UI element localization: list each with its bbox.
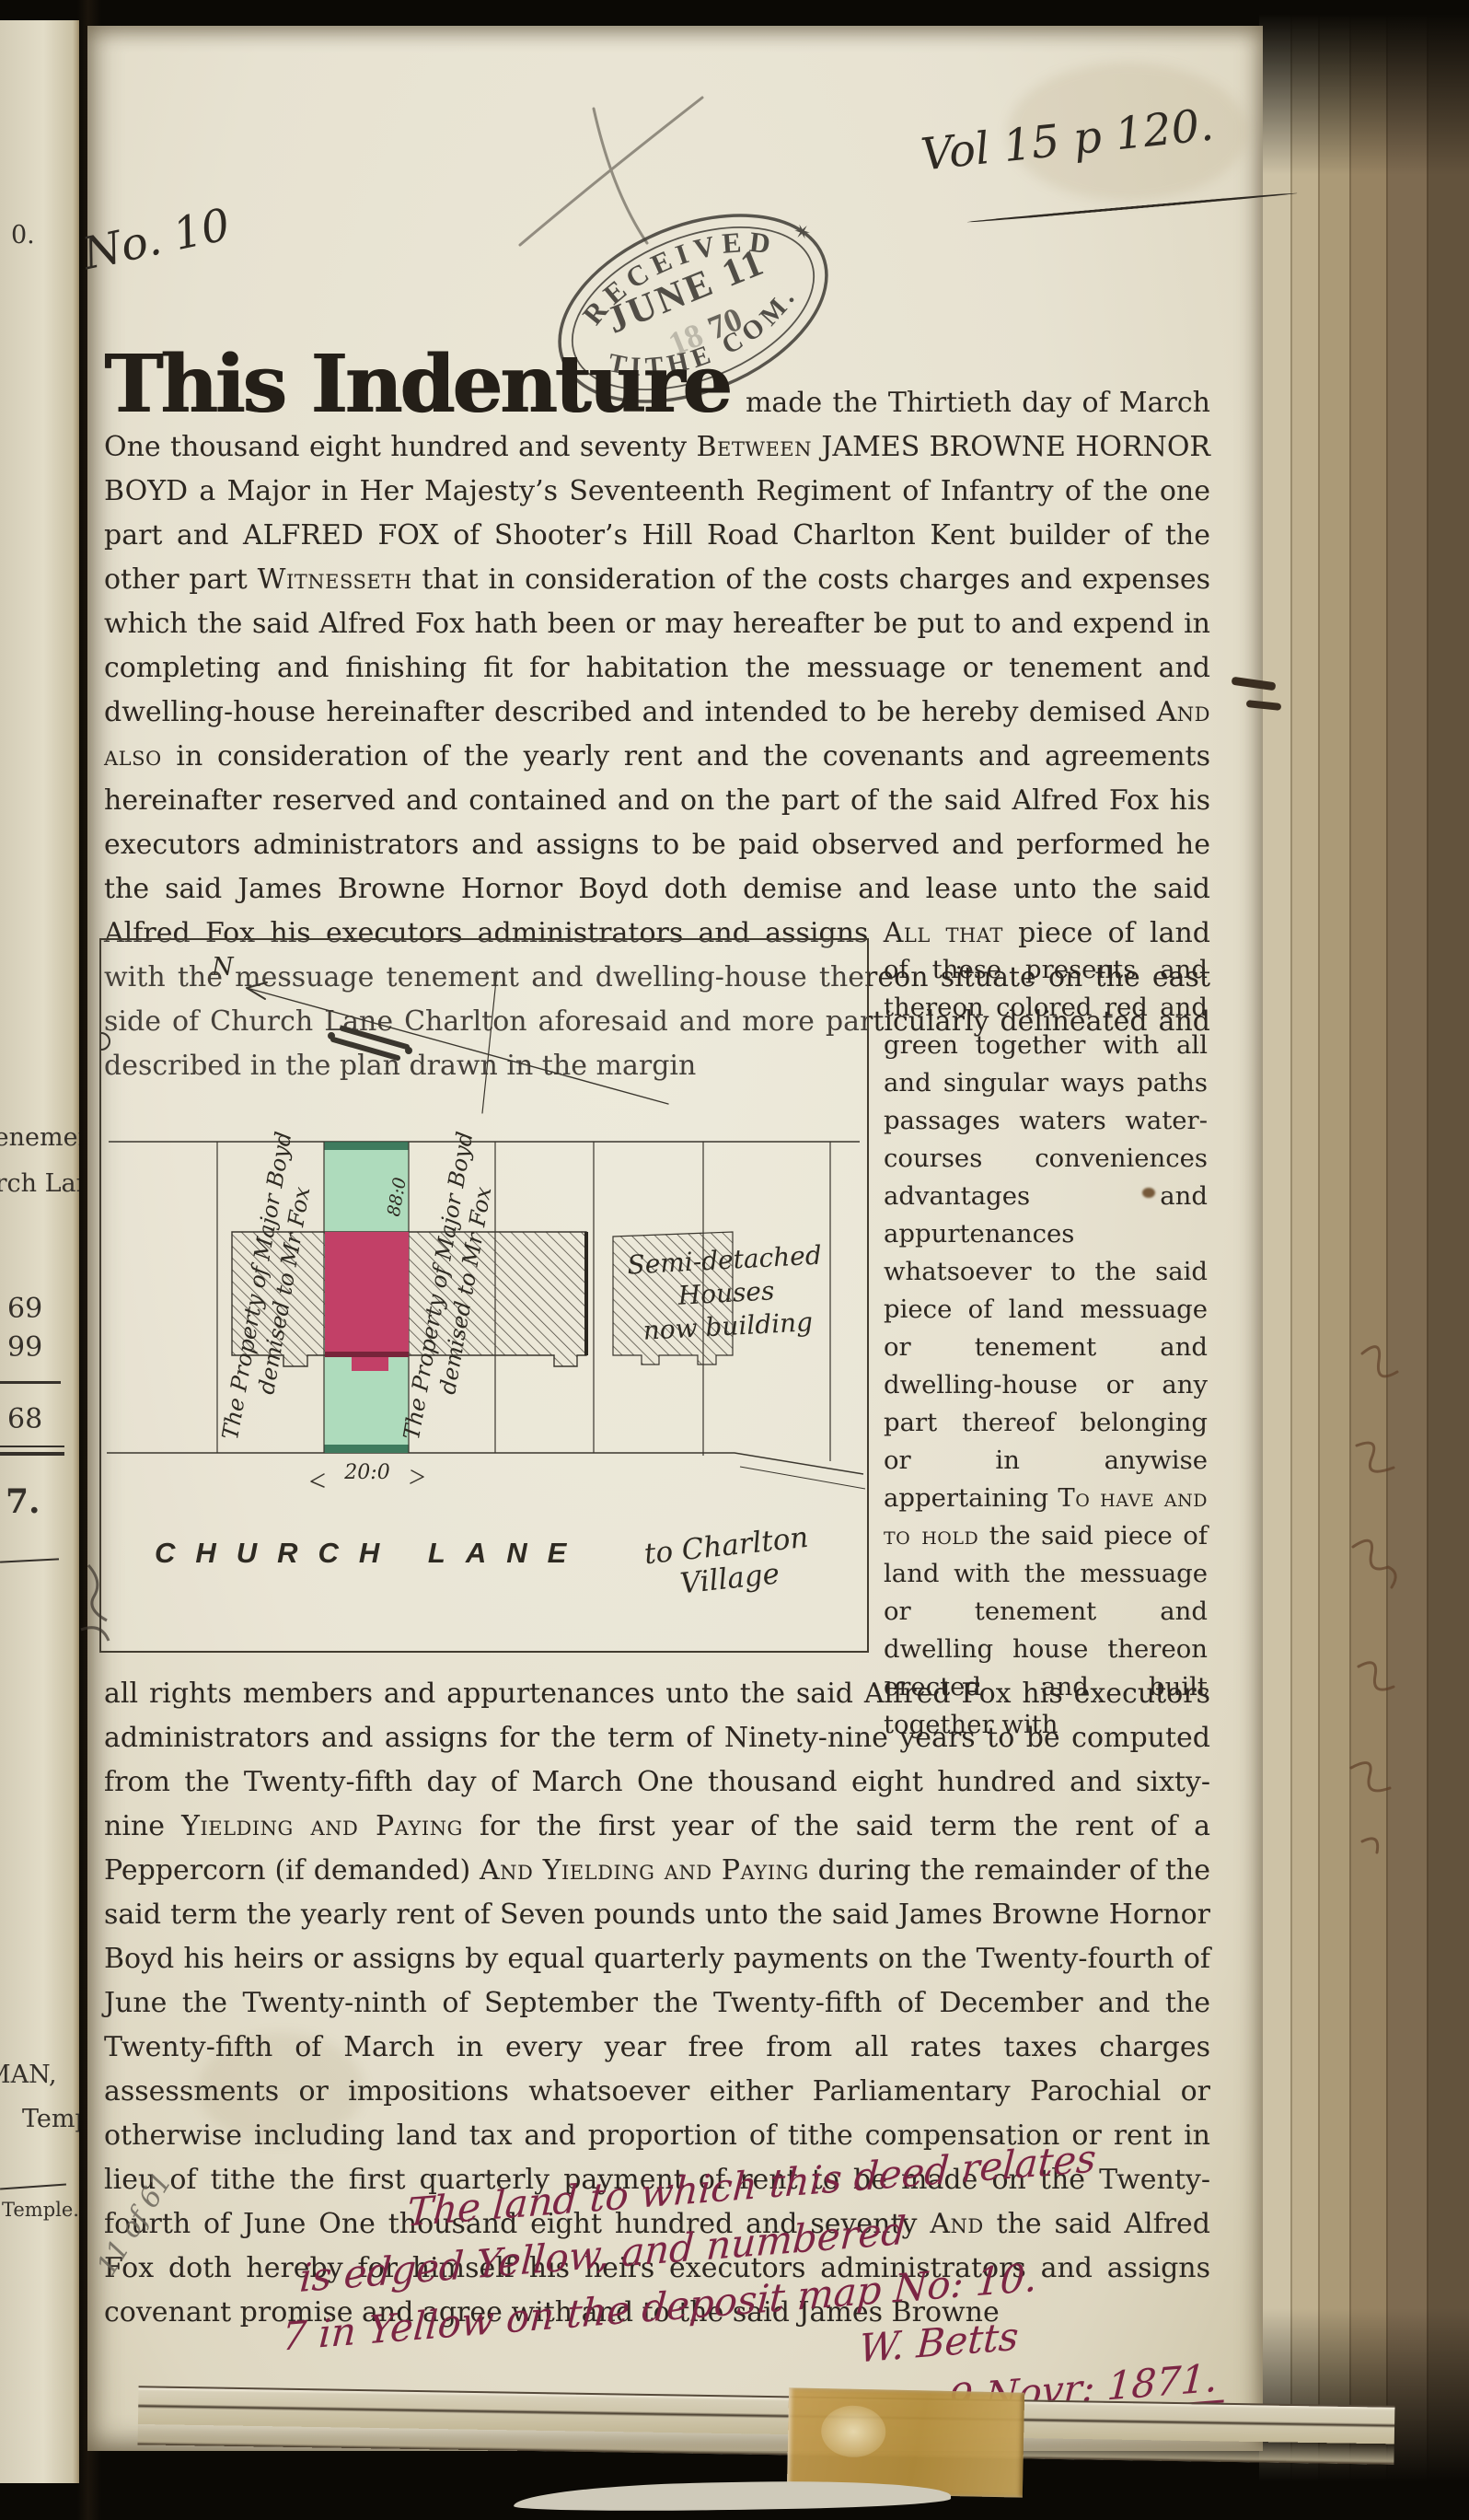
side-column-text: of these presents and thereon colored re… xyxy=(884,951,1208,1744)
deed-side-column: of these presents and thereon colored re… xyxy=(884,938,1208,1744)
north-label: N xyxy=(212,953,234,981)
prev-page-fragment: 69 xyxy=(7,1293,42,1325)
prev-page-fragment: 0. xyxy=(11,221,35,250)
prev-page-fragment: urch Lan xyxy=(0,1169,79,1198)
prev-page-rule xyxy=(0,1381,61,1384)
prev-page-fragment: Temple. xyxy=(2,2199,79,2221)
prev-page-rule xyxy=(0,1452,64,1456)
houses-under-construction-note: Semi-detached Houses now building xyxy=(601,1237,850,1350)
binding-pen-mark xyxy=(72,1556,127,1676)
prev-page-rule xyxy=(0,1558,59,1562)
prev-page-rule xyxy=(0,1446,64,1447)
prev-page-fragment: 68 xyxy=(7,1403,42,1435)
page-stack-edge xyxy=(1351,9,1388,2492)
prev-page-fragment: 7. xyxy=(6,1482,40,1521)
road-name: CHURCH LANE xyxy=(155,1537,615,1570)
prev-page-fragment: MAN, xyxy=(0,2061,57,2089)
fore-edge-marginalia xyxy=(1325,1326,1463,1897)
opening-words: This Indenture xyxy=(104,338,735,431)
previous-page-edge: 0. Tenemen urch Lan 69 99 68 7. MAN, Tem… xyxy=(0,20,79,2483)
page-stack-edge xyxy=(1320,9,1351,2492)
prev-page-fragment: Tenemen xyxy=(0,1123,79,1152)
page-stack-edge xyxy=(1388,9,1429,2492)
property-plan: N The Property of Major Boyd demised to … xyxy=(99,938,869,1653)
page-stack-edge xyxy=(1292,9,1320,2492)
plan-figure-row: N The Property of Major Boyd demised to … xyxy=(99,938,1213,1744)
prev-page-fragment: Temple xyxy=(22,2105,79,2133)
document-number: No. 10 xyxy=(78,199,235,280)
scanned-deed-page: 0. Tenemen urch Lan 69 99 68 7. MAN, Tem… xyxy=(0,0,1469,2520)
prev-page-fragment: 99 xyxy=(7,1331,42,1364)
page-stack-edge xyxy=(1429,9,1469,2492)
frontage-measurement: 20:0 xyxy=(317,1461,418,1484)
stack-shadow xyxy=(1252,0,1469,175)
prev-page-rule xyxy=(0,2183,66,2189)
tape-highlight xyxy=(821,2405,886,2457)
deed-page: Vol 15 p 120. No. 10 RECEIVED TITHE COM. xyxy=(87,26,1263,2451)
bottom-page-corner xyxy=(514,2479,951,2514)
